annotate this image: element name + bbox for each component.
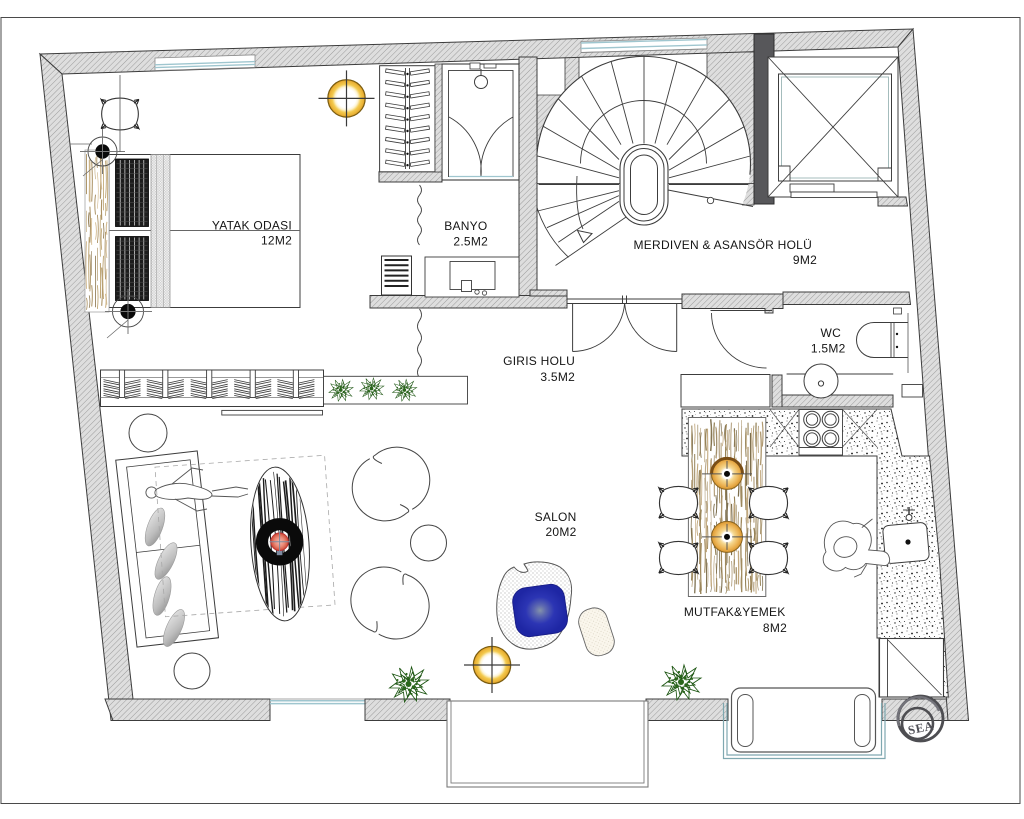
svg-text:8M2: 8M2 bbox=[763, 621, 787, 635]
svg-text:YATAK ODASI: YATAK ODASI bbox=[212, 219, 292, 233]
svg-text:20M2: 20M2 bbox=[545, 525, 576, 539]
svg-text:WC: WC bbox=[821, 326, 842, 340]
svg-text:MERDIVEN & ASANSÖR HOLÜ: MERDIVEN & ASANSÖR HOLÜ bbox=[634, 238, 812, 252]
svg-text:3.5M2: 3.5M2 bbox=[540, 370, 575, 384]
svg-text:BANYO: BANYO bbox=[444, 219, 487, 233]
svg-text:9M2: 9M2 bbox=[793, 253, 817, 267]
svg-text:1.5M2: 1.5M2 bbox=[811, 342, 846, 356]
svg-text:SALON: SALON bbox=[535, 510, 577, 524]
svg-text:12M2: 12M2 bbox=[261, 234, 292, 248]
svg-text:MUTFAK&YEMEK: MUTFAK&YEMEK bbox=[684, 605, 786, 619]
svg-text:2.5M2: 2.5M2 bbox=[453, 234, 488, 248]
svg-text:GIRIS HOLU: GIRIS HOLU bbox=[503, 354, 575, 368]
